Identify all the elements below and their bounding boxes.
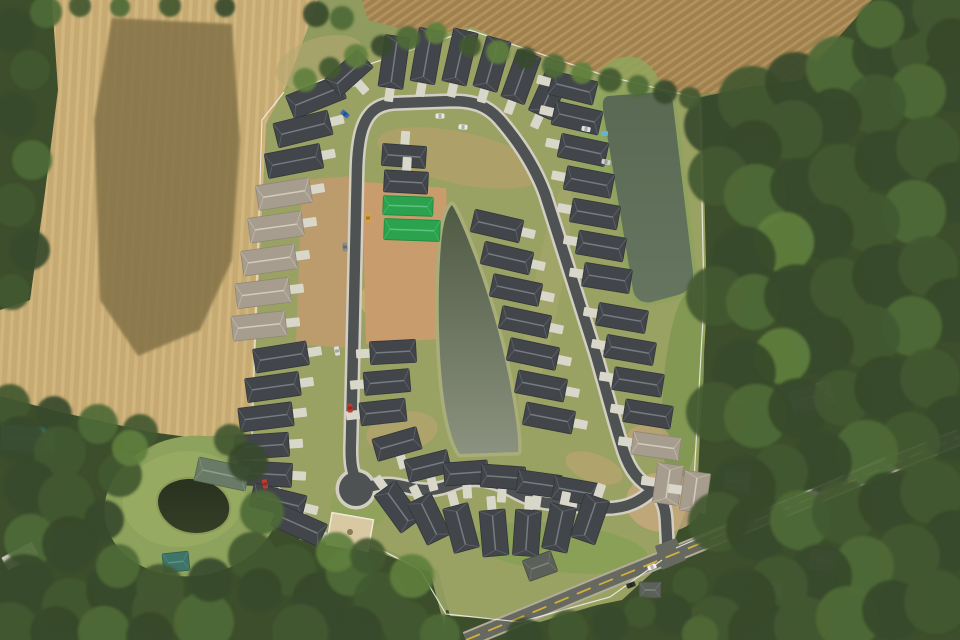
driveway <box>524 496 534 512</box>
driveway <box>288 439 304 449</box>
tree-canopy <box>624 596 656 628</box>
car-windshield <box>366 216 370 219</box>
tree-canopy <box>96 544 140 588</box>
tree-canopy <box>112 430 148 466</box>
tree-canopy <box>486 40 510 64</box>
car <box>436 114 445 119</box>
car-windshield <box>461 125 464 129</box>
tree-canopy <box>396 26 420 50</box>
tree-canopy <box>238 568 282 612</box>
tree-canopy <box>188 558 232 602</box>
tree-canopy <box>344 44 368 68</box>
driveway <box>291 471 306 481</box>
car-windshield <box>439 114 442 118</box>
tree-canopy <box>228 442 268 482</box>
car <box>342 242 348 251</box>
tree-canopy <box>330 6 354 30</box>
tree-canopy <box>10 50 50 90</box>
tree-canopy <box>78 404 118 444</box>
tree-canopy <box>598 68 622 92</box>
car <box>458 124 467 130</box>
driveway <box>350 379 366 389</box>
tree-canopy <box>390 554 434 598</box>
tree-canopy <box>653 80 677 104</box>
driveway <box>356 349 371 359</box>
driveway <box>497 487 507 503</box>
aerial-photo <box>0 0 960 640</box>
tree-canopy <box>240 490 284 534</box>
tree-canopy <box>319 57 341 79</box>
house-green <box>384 219 441 242</box>
tree-canopy <box>84 500 124 540</box>
car <box>347 403 353 412</box>
driveway <box>284 317 300 328</box>
tree-canopy <box>542 54 566 78</box>
tree-canopy <box>10 230 50 270</box>
house-rural <box>639 582 661 598</box>
tree-canopy <box>627 75 649 97</box>
car-windshield <box>343 245 347 248</box>
driveway <box>402 157 412 172</box>
tree-canopy <box>350 538 386 574</box>
aerial-photo-canvas <box>0 0 960 640</box>
backyard-pool <box>601 131 608 136</box>
car-windshield <box>348 406 352 409</box>
driveway <box>291 408 307 419</box>
tree-canopy <box>425 22 447 44</box>
tree-canopy <box>515 47 537 69</box>
house-green <box>383 196 434 217</box>
tree-canopy <box>571 62 593 84</box>
tree-canopy <box>316 532 356 572</box>
driveway <box>486 496 496 512</box>
driveway <box>462 483 472 499</box>
car <box>365 213 370 222</box>
tree-canopy <box>856 0 904 48</box>
tree-canopy <box>679 87 701 109</box>
tree-canopy <box>293 68 317 92</box>
driveway <box>400 131 410 147</box>
tree-canopy <box>303 1 329 27</box>
driveway <box>288 284 304 295</box>
tree-canopy <box>36 396 72 432</box>
tree-canopy <box>136 564 184 612</box>
tree-canopy <box>371 35 393 57</box>
tree-canopy <box>12 140 52 180</box>
tree-canopy <box>459 35 481 57</box>
